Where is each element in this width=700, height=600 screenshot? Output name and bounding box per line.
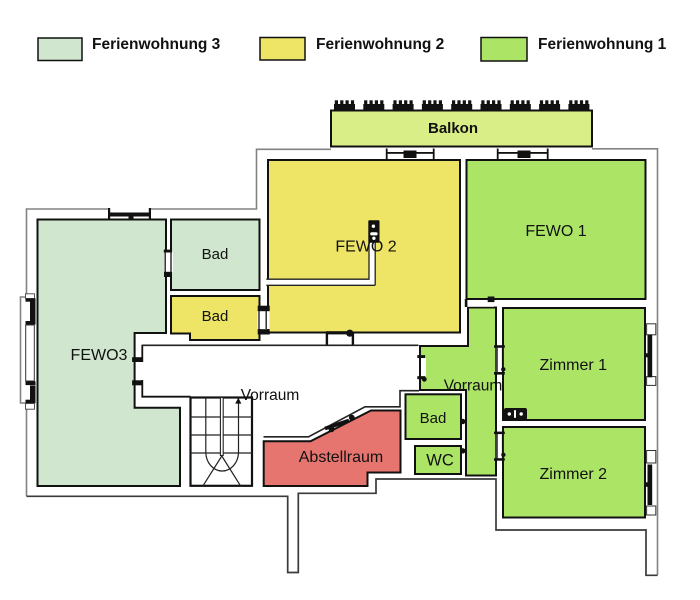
svg-text:Vorraum: Vorraum xyxy=(241,387,300,404)
svg-text:FEWO 2: FEWO 2 xyxy=(335,239,396,256)
svg-text:FEWO 1: FEWO 1 xyxy=(525,223,586,240)
svg-text:FEWO3: FEWO3 xyxy=(71,347,128,364)
svg-text:WC: WC xyxy=(426,452,454,470)
svg-text:Balkon: Balkon xyxy=(428,120,478,137)
svg-text:Ferienwohnung 3: Ferienwohnung 3 xyxy=(92,36,221,53)
svg-text:Ferienwohnung 2: Ferienwohnung 2 xyxy=(316,36,444,53)
svg-text:Bad: Bad xyxy=(202,246,229,263)
svg-text:Bad: Bad xyxy=(202,308,229,325)
svg-text:Ferienwohnung 1: Ferienwohnung 1 xyxy=(538,36,667,53)
svg-text:Bad: Bad xyxy=(420,410,447,427)
svg-text:Abstellraum: Abstellraum xyxy=(299,449,383,466)
svg-text:Vorraum: Vorraum xyxy=(444,377,503,394)
svg-text:Zimmer 1: Zimmer 1 xyxy=(540,357,608,374)
svg-text:Zimmer 2: Zimmer 2 xyxy=(540,466,608,483)
